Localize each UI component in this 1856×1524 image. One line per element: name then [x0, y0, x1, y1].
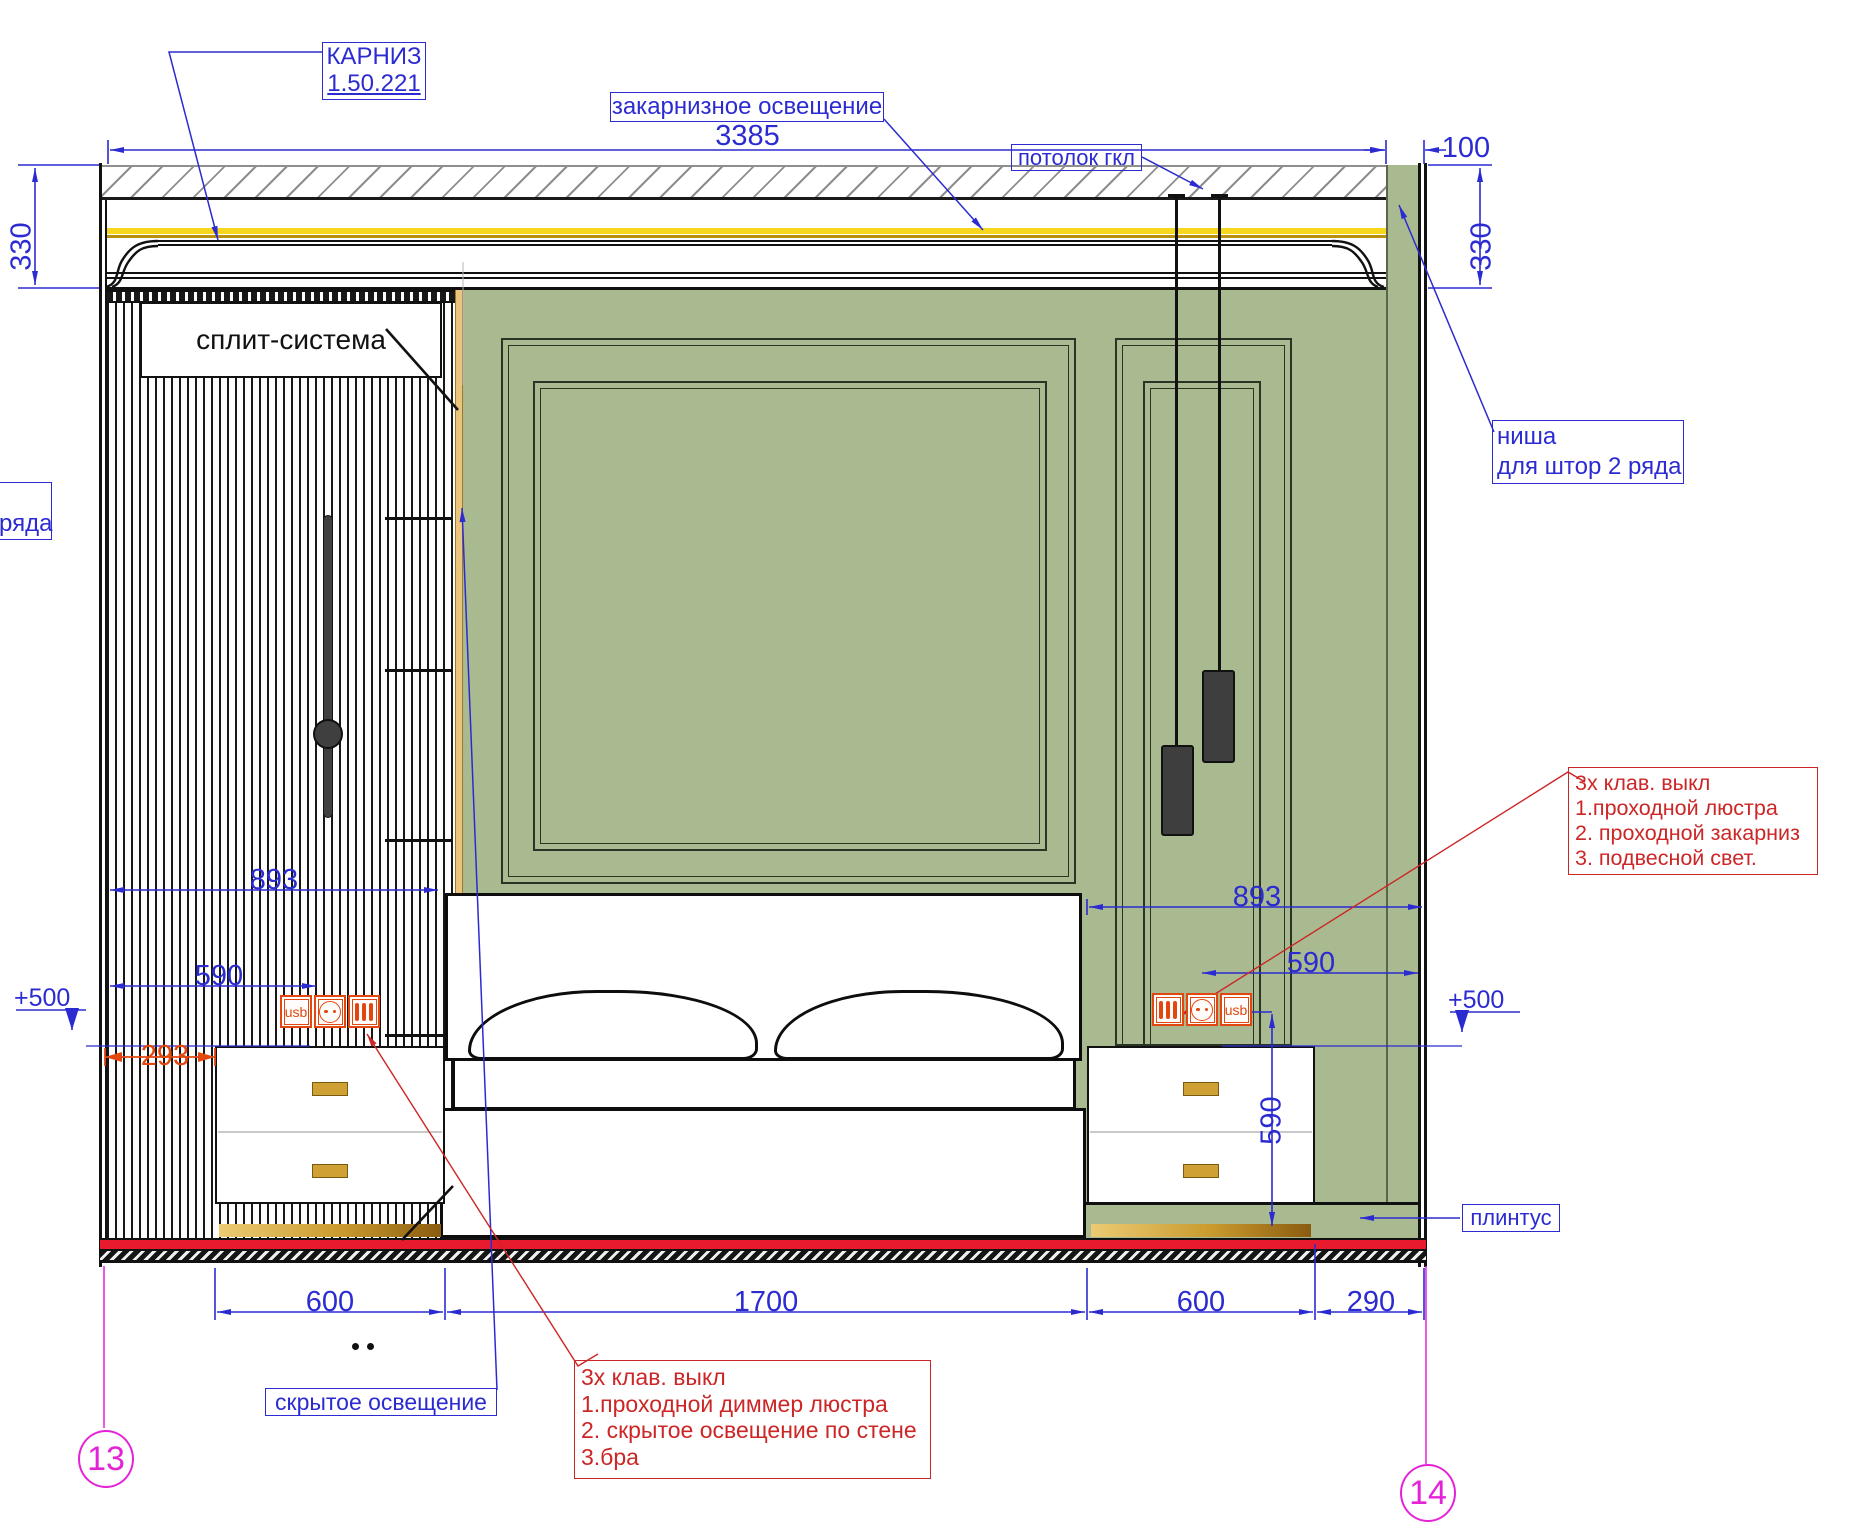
red-leaders	[367, 772, 1585, 1366]
plinth-label-box: плинтус	[1462, 1204, 1560, 1232]
dim-bottom-chain	[215, 1244, 1424, 1320]
hidden-light-label: скрытое освещение	[275, 1389, 487, 1415]
dim-330-group	[18, 165, 1492, 288]
note-line: 3х клав. выкл	[1575, 771, 1811, 796]
note-line: 1.проходной диммер люстра	[581, 1391, 924, 1418]
socket-group-left: usb	[280, 995, 380, 1028]
dim-590-right: 590	[1283, 949, 1339, 978]
dim-330-right: 330	[1468, 215, 1497, 279]
cornice-curves	[106, 241, 1384, 287]
dim-290: 290	[1343, 1288, 1399, 1317]
cut-label: ряда	[0, 483, 51, 537]
note-line: 3. подвесной свет.	[1575, 846, 1811, 871]
dot-mark	[352, 1343, 359, 1350]
niche-label-2: для штор 2 ряда	[1497, 452, 1683, 481]
switch-note-left: 3х клав. выкл 1.проходной диммер люстра …	[574, 1360, 931, 1479]
cornice-label: КАРНИЗ	[323, 43, 425, 71]
level-500-group	[16, 1010, 1520, 1046]
note-line: 1.проходной люстра	[1575, 796, 1811, 821]
plinth-label: плинтус	[1470, 1205, 1551, 1230]
cove-light-label-box: закарнизное освещение	[610, 92, 884, 122]
usb-socket: usb	[1220, 993, 1252, 1026]
dim-600-right: 600	[1174, 1288, 1228, 1317]
dim-100: 100	[1434, 134, 1498, 163]
dim-3385: 3385	[700, 122, 795, 151]
usb-label: usb	[1225, 1002, 1248, 1018]
ceiling-label: потолок гкл	[1018, 145, 1135, 170]
dim-590-left: 590	[191, 962, 247, 991]
level-500-right: +500	[1448, 986, 1520, 1015]
hidden-light-label-box: скрытое освещение	[265, 1388, 497, 1416]
cornice-ref: 1.50.221	[323, 71, 425, 97]
switch-icon	[1152, 993, 1184, 1026]
note-line: 2. проходной закарниз	[1575, 821, 1811, 846]
blue-leaders	[169, 52, 1494, 1390]
switch-icon	[348, 995, 380, 1028]
annotation-lines	[0, 0, 1856, 1524]
ceiling-label-box: потолок гкл	[1011, 144, 1142, 171]
dim-left-group	[110, 890, 438, 986]
cut-label-box: ряда	[0, 482, 52, 540]
elevation-drawing: КАРНИЗ 1.50.221 закарнизное освещение по…	[0, 0, 1856, 1524]
niche-label-1: ниша	[1497, 421, 1683, 452]
power-socket-icon	[1186, 993, 1218, 1026]
note-line: 3х клав. выкл	[581, 1364, 924, 1391]
dim-893-left: 893	[244, 866, 304, 895]
socket-group-right: usb	[1152, 993, 1252, 1026]
section-number: 14	[1409, 1474, 1447, 1513]
dim-893-right: 893	[1227, 883, 1287, 912]
usb-label: usb	[285, 1004, 308, 1020]
level-500-left: +500	[14, 984, 86, 1013]
cove-light-label: закарнизное освещение	[612, 93, 882, 120]
dim-330-left: 330	[8, 215, 37, 279]
niche-label-box: ниша для штор 2 ряда	[1492, 420, 1684, 484]
dim-600-left: 600	[303, 1288, 357, 1317]
split-system-label: сплит-система	[196, 324, 386, 356]
dim-293: 293	[134, 1042, 196, 1071]
power-socket-icon	[314, 995, 346, 1028]
usb-socket: usb	[280, 995, 312, 1028]
dim-1700: 1700	[731, 1288, 801, 1317]
split-system-box: сплит-система	[140, 302, 442, 378]
dim-590-vertical: 590	[1258, 1093, 1287, 1149]
section-marker-14: 14	[1400, 1464, 1456, 1522]
cornice-label-box: КАРНИЗ 1.50.221	[322, 42, 426, 100]
section-marker-13: 13	[78, 1430, 134, 1488]
switch-note-right: 3х клав. выкл 1.проходной люстра 2. прох…	[1568, 767, 1818, 875]
note-line: 3.бра	[581, 1444, 924, 1471]
note-line: 2. скрытое освещение по стене	[581, 1417, 924, 1444]
dot-mark	[367, 1343, 374, 1350]
section-number: 13	[87, 1440, 125, 1479]
